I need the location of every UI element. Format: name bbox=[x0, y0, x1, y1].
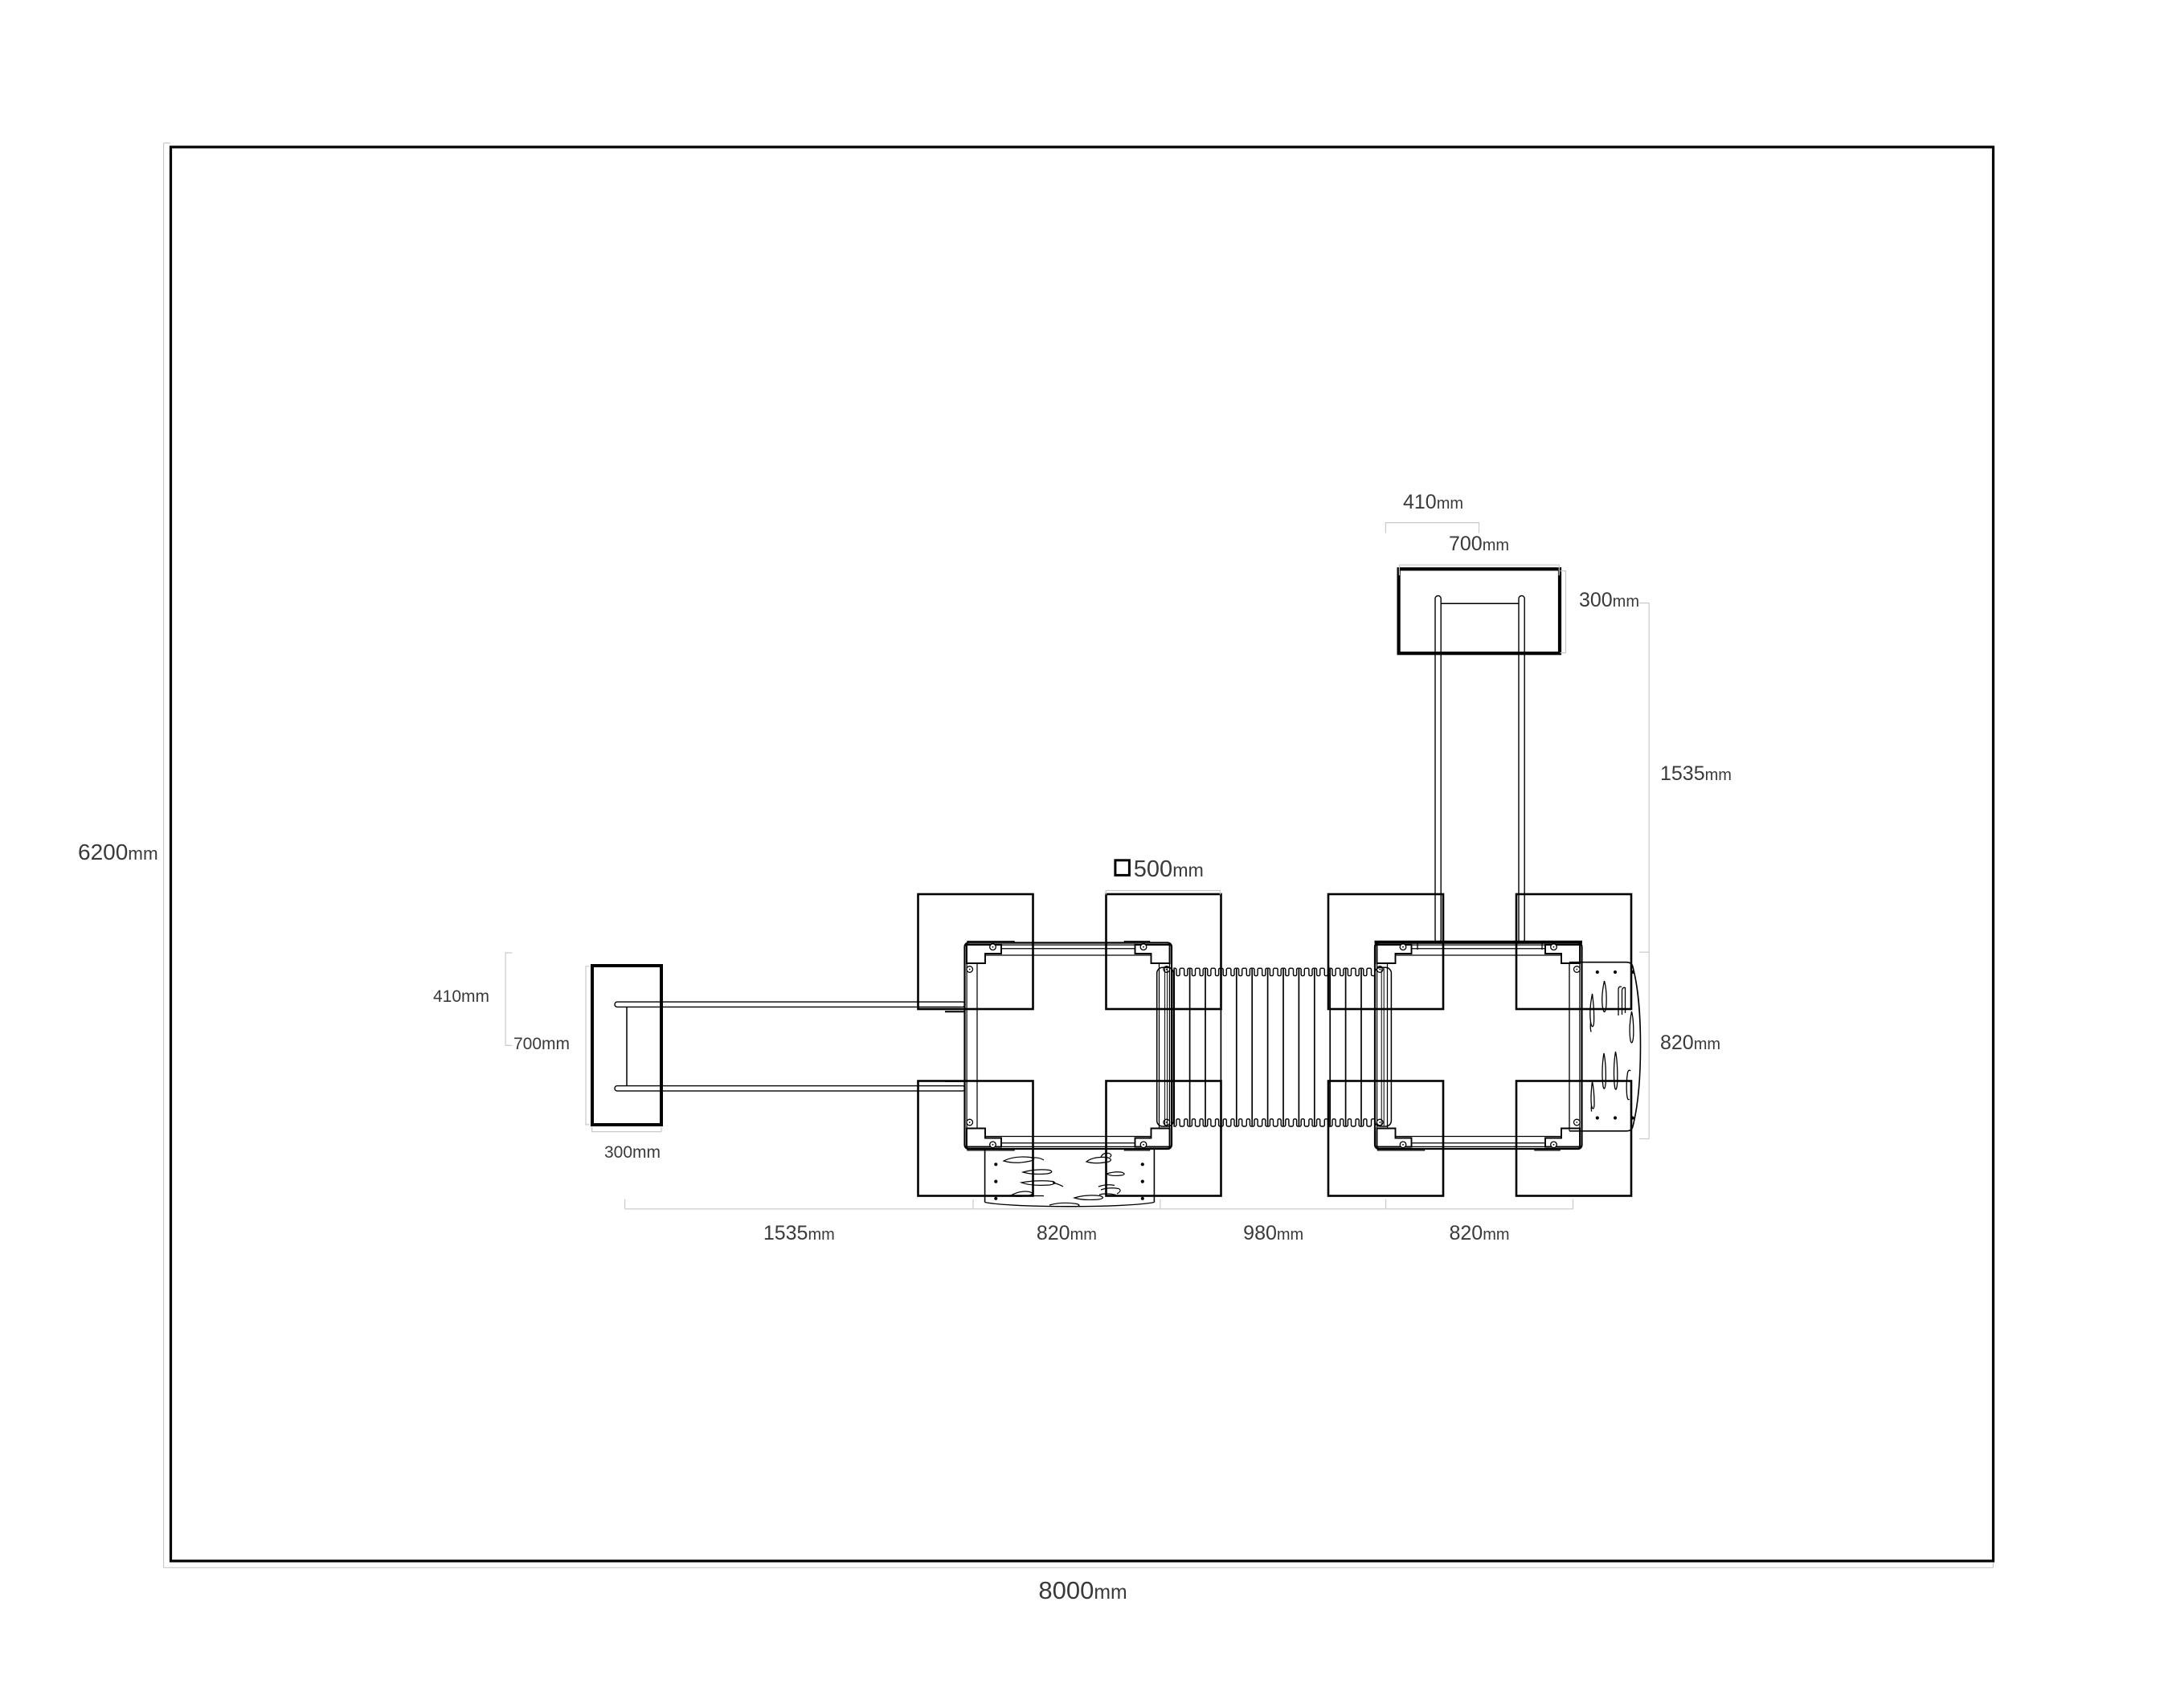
svg-text:820mm: 820mm bbox=[1449, 1222, 1509, 1244]
svg-text:6200mm: 6200mm bbox=[78, 840, 158, 864]
svg-text:700mm: 700mm bbox=[1449, 533, 1509, 555]
svg-text:410mm: 410mm bbox=[433, 987, 489, 1006]
svg-text:980mm: 980mm bbox=[1243, 1222, 1303, 1244]
svg-text:820mm: 820mm bbox=[1660, 1032, 1720, 1054]
svg-text:500mm: 500mm bbox=[1134, 856, 1204, 882]
svg-text:1535mm: 1535mm bbox=[763, 1222, 835, 1244]
svg-text:300mm: 300mm bbox=[604, 1143, 661, 1162]
svg-text:1535mm: 1535mm bbox=[1660, 762, 1732, 785]
svg-text:820mm: 820mm bbox=[1037, 1222, 1097, 1244]
svg-text:300mm: 300mm bbox=[1579, 589, 1639, 611]
svg-text:410mm: 410mm bbox=[1403, 491, 1463, 513]
svg-text:700mm: 700mm bbox=[513, 1035, 570, 1053]
